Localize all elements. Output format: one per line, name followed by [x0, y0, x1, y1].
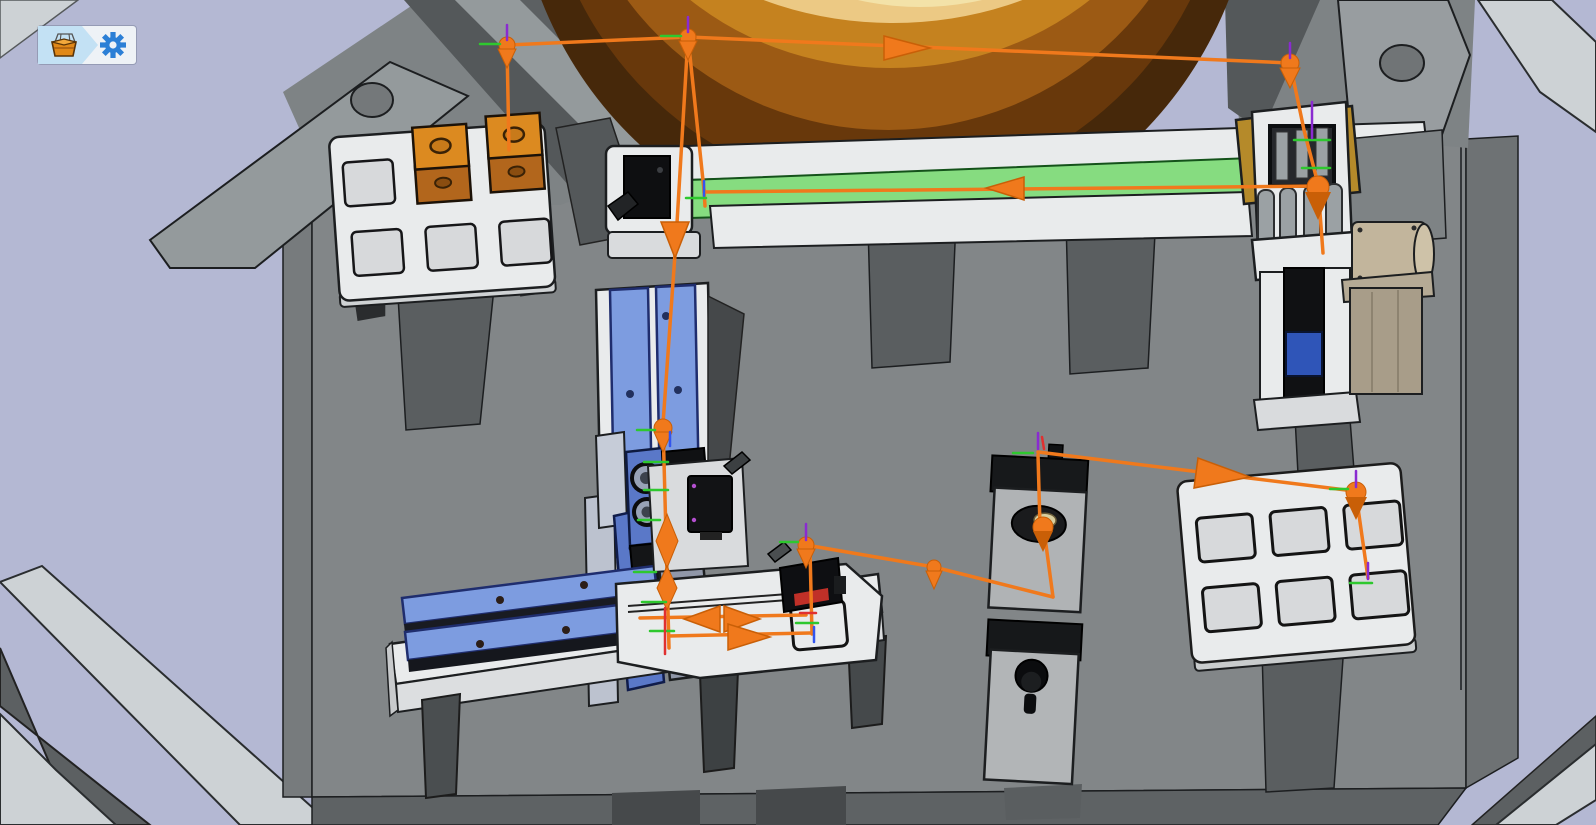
input-tray — [328, 113, 557, 323]
tray-slot-empty — [1270, 507, 1330, 556]
orange-part — [486, 113, 545, 193]
filter-unit — [1342, 272, 1434, 394]
frame-hole-left — [351, 83, 393, 117]
tray-slot-empty — [1202, 583, 1262, 632]
parts-bin-button[interactable] — [38, 26, 90, 64]
scene-3d[interactable] — [0, 0, 1596, 825]
orange-part — [412, 124, 471, 204]
tray-slot-empty — [1276, 577, 1336, 626]
conveyor-sensor — [606, 146, 700, 258]
pick-place-unit — [1236, 102, 1446, 430]
frame-beam-topright — [1478, 0, 1596, 132]
gear-icon — [99, 31, 127, 59]
tray-slot-empty — [425, 224, 478, 271]
frame-beams-bottomleft — [0, 566, 332, 825]
tray-slot-empty — [351, 229, 404, 276]
settings-button[interactable] — [90, 26, 136, 64]
frame-hole-right — [1380, 45, 1424, 81]
output-tray — [1177, 462, 1417, 671]
tray-slot-empty — [499, 218, 552, 265]
toolbar — [38, 26, 136, 64]
tray-slot-empty — [1196, 514, 1256, 563]
tray-slot-empty — [1350, 570, 1410, 619]
crate-icon — [48, 31, 80, 59]
viewport-3d[interactable] — [0, 0, 1596, 825]
tray-slot-empty — [342, 159, 395, 206]
knob-stand — [980, 619, 1082, 784]
